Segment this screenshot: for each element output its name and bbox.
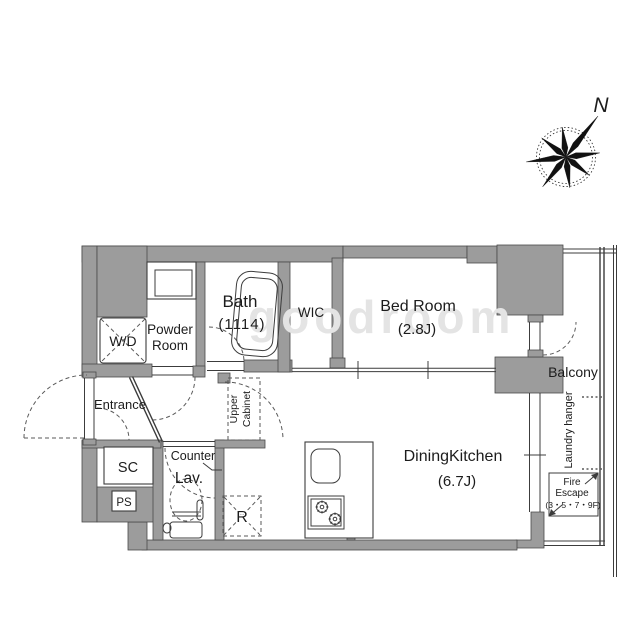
compass-blade bbox=[566, 153, 600, 159]
wall-top-bedroom bbox=[343, 246, 467, 258]
floor-plan: goodroom bbox=[0, 0, 640, 640]
upper-cabinet-label-1: Upper bbox=[228, 394, 240, 423]
wall-bottom bbox=[142, 540, 517, 550]
powder-door-swing-arc bbox=[152, 377, 195, 420]
entrance-label: Entrance bbox=[94, 397, 146, 412]
fire-escape-label-3: (3・5・7・9F) bbox=[545, 500, 600, 510]
shoe-closet-label: SC bbox=[118, 460, 138, 476]
wall-top-step bbox=[467, 246, 497, 263]
compass-blade bbox=[526, 156, 566, 162]
building-outer-line bbox=[614, 245, 617, 577]
bedroom-label: Bed Room bbox=[380, 298, 456, 315]
east-window bbox=[530, 393, 541, 512]
entrance-exterior-swing-arc bbox=[24, 375, 87, 438]
wall-left-upper bbox=[82, 246, 97, 375]
pipe-space-label: PS bbox=[116, 497, 132, 509]
powder-room-label-2: Room bbox=[152, 338, 188, 353]
dining-kitchen-size-label: (6.7J) bbox=[438, 473, 476, 490]
wall-balcony-door-post-bottom bbox=[528, 350, 543, 357]
bedroom-size-label: (2.8J) bbox=[398, 321, 436, 338]
entrance-interior-swing-arc bbox=[97, 408, 129, 440]
fire-escape-arrow-1 bbox=[549, 509, 556, 516]
floor-plan-drawing: goodroom bbox=[0, 0, 640, 640]
wall-bottom-left-step bbox=[128, 522, 147, 550]
wall-above-wd bbox=[97, 246, 147, 317]
bath-label: Bath bbox=[223, 292, 258, 311]
toilet-icon bbox=[163, 479, 203, 538]
compass-rose-icon: N bbox=[526, 94, 609, 188]
upper-cabinet-label-2: Cabinet bbox=[241, 391, 253, 427]
wall-left-lower bbox=[82, 441, 97, 522]
bedroom-partition-track bbox=[292, 368, 496, 371]
wall-southeast-corner bbox=[516, 512, 544, 548]
refrigerator-label: R bbox=[236, 509, 248, 526]
balcony-door-frame bbox=[530, 322, 541, 350]
compass-blade-north bbox=[566, 116, 598, 157]
balcony-door-swing-arc bbox=[543, 322, 576, 355]
powder-room-label-1: Powder bbox=[147, 322, 193, 337]
balcony-label: Balcony bbox=[548, 364, 598, 380]
fire-escape-label-1: Fire bbox=[563, 477, 581, 488]
fire-escape-arrow-2 bbox=[591, 473, 598, 480]
vanity-outer bbox=[147, 262, 196, 299]
washer-dryer-label: W/D bbox=[109, 333, 136, 349]
counter-label: Counter bbox=[171, 449, 215, 463]
lav-door-opening bbox=[163, 442, 215, 447]
laundry-hanger-label: Laundry hanger bbox=[563, 391, 575, 468]
bath-door-opening bbox=[207, 362, 244, 371]
wall-balcony-door-post-top bbox=[528, 315, 543, 322]
wall-entrance-jamb-top bbox=[83, 372, 96, 378]
wall-powder-door-post bbox=[193, 366, 205, 377]
balcony-top-rail bbox=[563, 249, 616, 253]
wall-lav-left bbox=[153, 441, 163, 540]
wall-corridor-bottom bbox=[215, 440, 265, 448]
powder-door-opening bbox=[152, 367, 193, 376]
dining-kitchen-label: DiningKitchen bbox=[404, 448, 503, 465]
compass-north-label: N bbox=[593, 94, 609, 117]
lavatory-label: Lav. bbox=[175, 470, 203, 487]
wall-powder-bath-divider bbox=[196, 262, 205, 372]
fire-escape-label-2: Escape bbox=[555, 488, 589, 499]
balcony-bottom-edge bbox=[544, 541, 605, 546]
entrance-door-jamb-lines bbox=[85, 378, 95, 439]
wic-label: WIC bbox=[298, 305, 324, 320]
partition-ticks bbox=[358, 361, 428, 379]
bath-size-label: (1114) bbox=[218, 316, 265, 333]
toilet-tank bbox=[170, 522, 202, 538]
wall-entrance-jamb-bottom bbox=[83, 439, 96, 445]
wall-bedroom-post bbox=[330, 358, 345, 368]
